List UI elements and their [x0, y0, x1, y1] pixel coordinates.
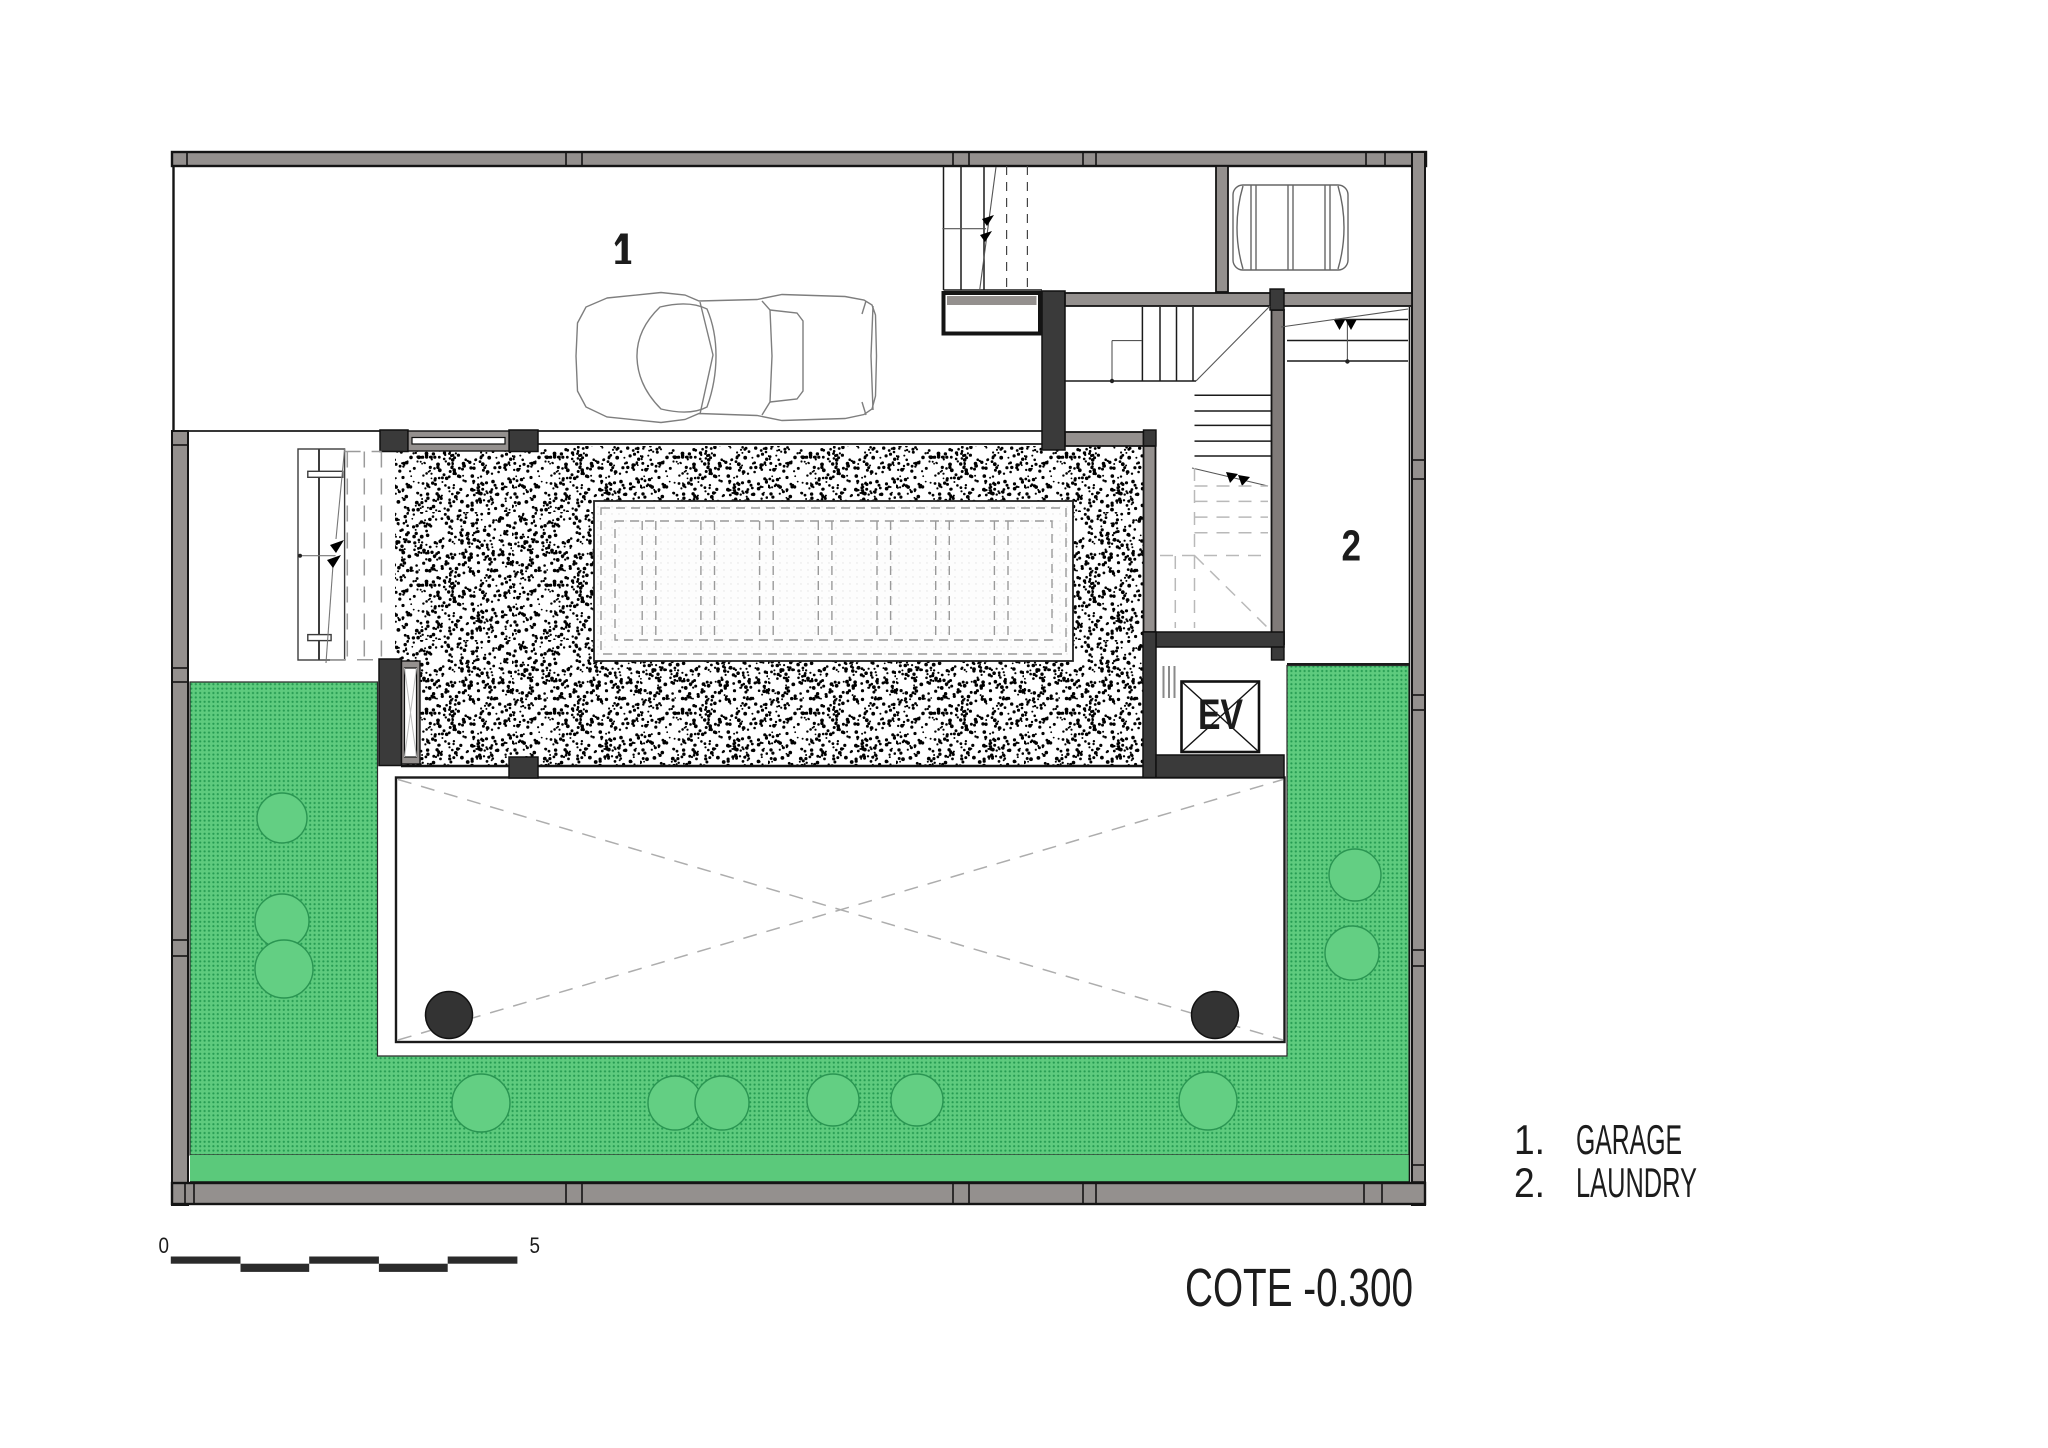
svg-text:EV: EV [1198, 691, 1243, 739]
svg-text:5: 5 [530, 1233, 541, 1258]
svg-text:0: 0 [159, 1233, 170, 1258]
svg-text:2.: 2. [1514, 1159, 1545, 1206]
svg-text:COTE -0.300: COTE -0.300 [1185, 1258, 1413, 1318]
svg-text:1.: 1. [1514, 1116, 1545, 1163]
svg-text:2: 2 [1342, 522, 1362, 571]
svg-text:LAUNDRY: LAUNDRY [1576, 1159, 1697, 1206]
svg-text:GARAGE: GARAGE [1576, 1116, 1682, 1163]
